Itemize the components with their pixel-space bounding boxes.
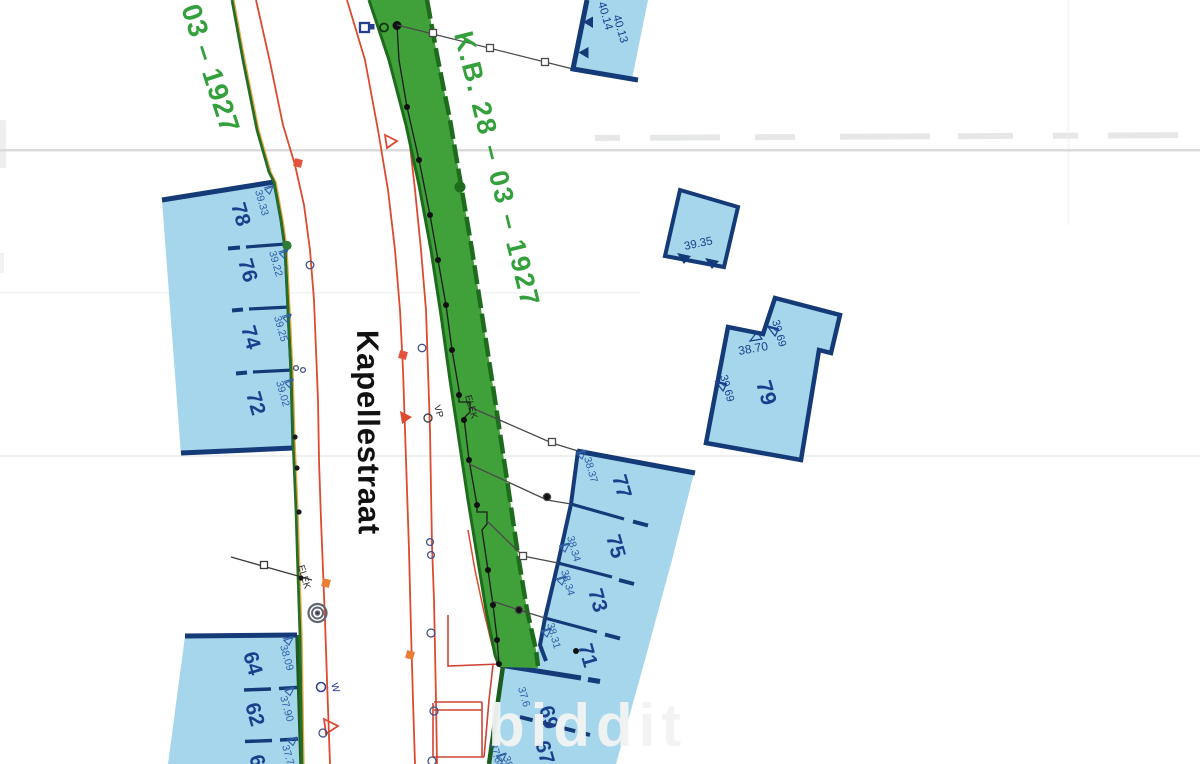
svg-text:Kapellestraat: Kapellestraat [350,330,387,535]
svg-text:biddit: biddit [488,692,687,759]
